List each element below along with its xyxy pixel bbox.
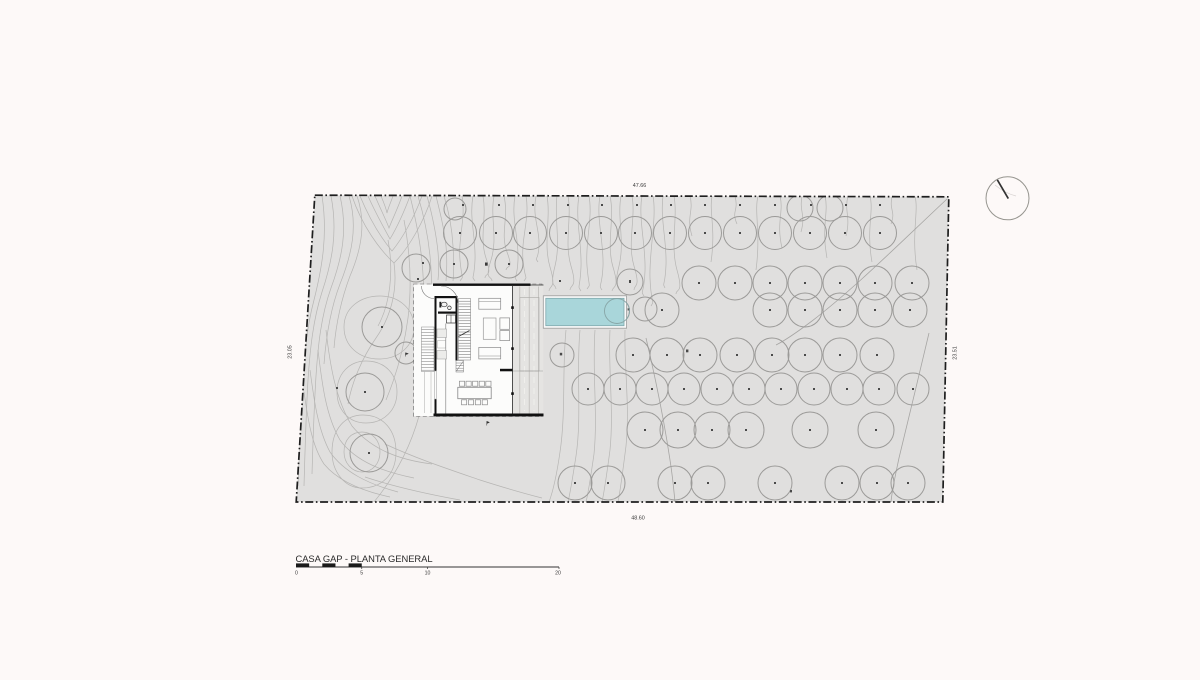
svg-text:20: 20: [555, 571, 561, 577]
svg-text:CASA GAP - PLANTA GENERAL: CASA GAP - PLANTA GENERAL: [296, 553, 433, 564]
svg-text:23.05: 23.05: [288, 345, 294, 359]
svg-text:48.60: 48.60: [631, 516, 645, 522]
svg-text:10: 10: [425, 571, 431, 577]
svg-text:47.66: 47.66: [633, 183, 647, 189]
svg-text:5: 5: [360, 571, 363, 577]
svg-text:0: 0: [295, 571, 298, 577]
svg-text:23.51: 23.51: [952, 346, 958, 360]
